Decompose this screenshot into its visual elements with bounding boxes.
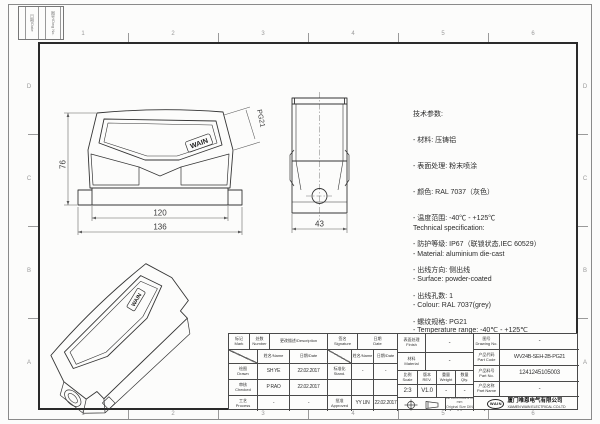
part-code-label: 产品代码 Part Code [473,349,499,365]
zone-tick [578,226,588,227]
rev-header-mark: 标记 Mark [229,334,249,349]
spec-cn-item: - 材料: 压铸铝 [413,135,541,147]
finish-value: - [425,334,473,352]
front-view: WAIN 76 120 136 PG21 [58,88,268,240]
part-no-label: 产品料号 Part No. [473,365,499,381]
row-process-date: - [289,395,327,411]
zone-top-5: 5 [438,31,448,37]
spec-cn-item: - 颜色: RAL 7037（灰色） [413,187,541,199]
scale-label: 比例 Scale [397,370,417,384]
zone-right-d: D [580,84,590,90]
spec-cn-item: - 表面处理: 粉末喷涂 [413,161,541,173]
iso-wain-label: WAIN [131,292,144,307]
zone-top-6: 6 [528,31,538,37]
zone-tick [28,226,38,227]
rev-value: V1.0 [417,384,436,397]
rev-subheader-name: 姓名/Name [257,349,289,363]
zone-tick [488,33,489,42]
rev-header-signature: 签名 Signature [327,334,357,349]
zone-top-1: 1 [78,31,88,37]
wain-logo: WAIN [487,399,504,409]
part-name-label: 产品名称 Part Name [473,381,499,396]
dim-136: 136 [153,223,167,232]
zone-right-c: C [580,176,590,182]
row-drawn-date: 22.02.2017 [289,363,327,379]
dim-43: 43 [315,220,324,229]
title-block: 标记 Mark 处数 Number 更改描述/Description 签名 Si… [228,333,578,410]
rev-header-number: 处数 Number [249,334,269,349]
company-name-en: XIAMEN WAIN ELECTRICAL CO.LTD [507,404,565,410]
spec-en-item: - Colour: RAL 7037(grey) [413,300,545,312]
zone-top-4: 4 [348,31,358,37]
dim-pg21: PG21 [255,109,266,128]
row-approved-name: YY LIN [351,395,373,411]
part-no-value: 1241245105003 [499,365,579,381]
row-approved-date: 22.02.2017 [373,395,397,411]
row-checked-role2 [327,379,351,395]
corner-cell-dwgno: 图号/Dwg No. [45,7,61,39]
zone-tick [398,410,399,419]
drawing-sheet: 1 2 3 4 5 6 1 2 3 4 5 6 D C B A D C B A … [0,0,600,424]
corner-filing-block: 日期/Date 图号/Dwg No. [18,6,64,40]
zone-bottom-3: 3 [258,411,268,417]
spec-en-item: - Surface: powder-coated [413,274,545,286]
rev-subheader-date-2: 日期/Date [373,349,397,363]
part-name-value: - [499,381,579,396]
row-checked-date2 [373,379,397,395]
drawing-no-label: 图号 Drawing No. [473,334,499,349]
dimension-note: All Dimensions in mm Original Size DIN A… [445,397,473,411]
zone-top-2: 2 [168,31,178,37]
rev-label: 版本 REV. [417,370,436,384]
qty-value: - [455,384,473,397]
zone-tick [28,134,38,135]
row-stand-name: - [351,363,373,379]
zone-tick [218,33,219,42]
zone-tick [578,318,588,319]
company-block: WAIN 厦门唯恩电气有限公司 XIAMEN WAIN ELECTRICAL C… [473,396,579,411]
row-stand-label: 标准化 Stand. [327,363,351,379]
row-drawn-name: SH YE [257,363,289,379]
spec-en-item: - Material: aluminium die-cast [413,249,545,261]
scale-value: 2:3 [397,384,417,397]
spec-en-title: Technical specification: [413,223,545,235]
corner-cell-date: 日期/Date [25,7,39,39]
row-checked-name2 [351,379,373,395]
side-view: 43 [288,92,358,240]
drawing-no-value: - [499,334,579,349]
zone-left-c: C [24,176,34,182]
row-checked-label: 审核 Checked [229,379,257,395]
qty-label: 数量 Qty. [455,370,473,384]
dim-120: 120 [153,209,167,218]
finish-label: 表面处理 Finish [397,334,425,352]
zone-tick [308,33,309,42]
row-checked-name: P RAO [257,379,289,395]
rev-header-date: 日期 Date [357,334,397,349]
material-label: 材料 Material [397,352,425,370]
row-process-label: 工艺 Process [229,395,257,411]
zone-right-a: A [580,360,590,366]
part-code-value: WV24B-SEH-2B-PG21 [499,349,579,365]
spec-cn-title: 技术参数: [413,109,541,121]
zone-tick [308,410,309,419]
row-approved-label: 批准 Approved [327,395,351,411]
zone-tick [398,33,399,42]
row-stand-date: - [373,363,397,379]
isometric-view: WAIN [26,254,230,422]
dim-76: 76 [59,160,68,169]
projection-symbol-icon [397,397,445,411]
zone-tick [578,134,588,135]
zone-bottom-4: 4 [348,411,358,417]
row-process-name: - [257,395,289,411]
rev-subheader-diagonal-2 [327,349,351,363]
zone-top-3: 3 [258,31,268,37]
material-value: - [425,352,473,370]
rev-header-description: 更改描述/Description [269,334,327,349]
zone-left-d: D [24,84,34,90]
rev-subheader-name-2: 姓名/Name [351,349,373,363]
row-checked-date: 22.02.2017 [289,379,327,395]
rev-subheader-date: 日期/Date [289,349,327,363]
row-drawn-label: 绘图 Drawn [229,363,257,379]
zone-tick [128,33,129,42]
weight-value: - [436,384,455,397]
rev-subheader-diagonal [229,349,257,363]
weight-label: 重量 Weight [436,370,455,384]
zone-right-b: B [580,268,590,274]
